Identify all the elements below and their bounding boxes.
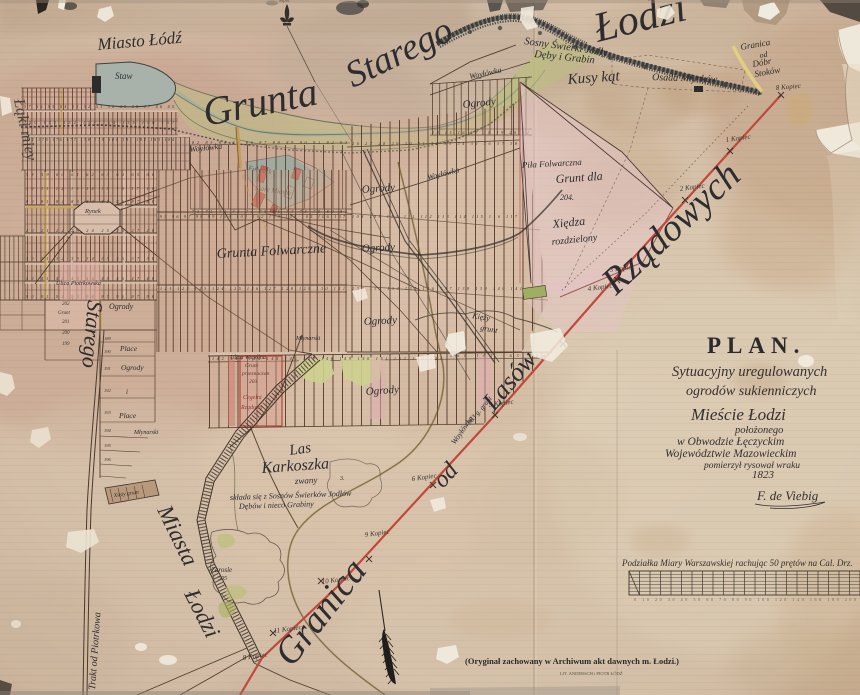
- svg-text:3.: 3.: [339, 476, 345, 482]
- svg-text:zwany: zwany: [294, 475, 318, 486]
- svg-text:199: 199: [62, 342, 70, 347]
- svg-text:195: 195: [104, 443, 112, 448]
- svg-text:193: 193: [104, 410, 112, 415]
- svg-text:Ogrody: Ogrody: [365, 384, 399, 398]
- svg-text:Województwie Mazowieckim: Województwie Mazowieckim: [665, 448, 797, 460]
- svg-text:95 96 97 98 99 100 101 102 103: 95 96 97 98 99 100 101 102 103 104 105 1…: [160, 214, 346, 219]
- svg-text:Ogrody: Ogrody: [361, 182, 395, 196]
- svg-text:w Obwodzie Łęczyckim: w Obwodzie Łęczyckim: [677, 436, 784, 448]
- svg-text:Ulica Wspólna: Ulica Wspólna: [230, 355, 266, 361]
- svg-text:Grunt: Grunt: [58, 311, 71, 316]
- svg-text:191: 191: [104, 366, 111, 371]
- svg-text:Place: Place: [119, 344, 138, 353]
- svg-text:ogrodów sukienniczych: ogrodów sukienniczych: [686, 384, 817, 399]
- svg-text:Cegelni: Cegelni: [243, 395, 262, 401]
- svg-text:14 15 16 17 18 19 20 21: 14 15 16 17 18 19 20 21: [432, 130, 529, 135]
- svg-text:204.: 204.: [560, 193, 574, 202]
- svg-text:Grunt: Grunt: [245, 363, 259, 369]
- svg-text:Ogrody: Ogrody: [364, 314, 398, 328]
- svg-text:Ogrody: Ogrody: [362, 241, 396, 255]
- svg-text:174 175 176 177 178 179 180 18: 174 175 176 177 178 179 180 181 182 183 …: [24, 137, 174, 142]
- svg-text:201: 201: [62, 320, 70, 325]
- svg-text:Ogrody: Ogrody: [121, 363, 144, 372]
- svg-text:Osada Młynków: Osada Młynków: [652, 72, 718, 85]
- svg-text:Ogrody: Ogrody: [109, 302, 134, 311]
- svg-text:200: 200: [62, 331, 70, 336]
- svg-text:Młynarski: Młynarski: [133, 430, 159, 436]
- svg-text:1823: 1823: [752, 469, 775, 481]
- svg-text:190: 190: [104, 349, 112, 354]
- svg-text:przeznaczon: przeznaczon: [241, 371, 269, 377]
- svg-text:196: 196: [104, 457, 112, 462]
- svg-text:PLAN.: PLAN.: [707, 333, 805, 358]
- svg-text:(Oryginał zachowany w Archiwum: (Oryginał zachowany w Archiwum akt dawny…: [465, 656, 679, 666]
- svg-text:505: 505: [218, 576, 227, 582]
- svg-text:Staw: Staw: [115, 71, 133, 81]
- svg-text:położonego: położonego: [734, 425, 783, 436]
- svg-text:121 122 123 124 125 126 127 12: 121 122 123 124 125 126 127 128 129 130 …: [160, 286, 345, 291]
- svg-text:Mieście Łodzi: Mieście Łodzi: [690, 405, 786, 424]
- svg-text:192: 192: [104, 388, 112, 393]
- svg-text:i: i: [126, 388, 128, 396]
- svg-text:Podziałka Miary Warszawskiej r: Podziałka Miary Warszawskiej rachując 50…: [621, 558, 853, 568]
- svg-text:70 71 72 73 74 75 76 77 78 79: 70 71 72 73 74 75 76 77 78 79 80 81: [192, 209, 347, 214]
- svg-text:Rynek: Rynek: [84, 208, 101, 215]
- svg-text:203: 203: [249, 379, 258, 385]
- svg-text:202: 202: [62, 302, 70, 307]
- svg-text:Place: Place: [118, 411, 137, 420]
- svg-text:Zarosle: Zarosle: [211, 566, 232, 574]
- svg-text:LIT. ANDERSCH i PIOTR ŁÓDŹ: LIT. ANDERSCH i PIOTR ŁÓDŹ: [560, 671, 623, 676]
- svg-text:Ulica Piotrkowska: Ulica Piotrkowska: [56, 281, 101, 287]
- svg-text:Młynarski: Młynarski: [295, 336, 321, 342]
- svg-text:194: 194: [104, 428, 112, 433]
- svg-text:F. de Viebig: F. de Viebig: [756, 488, 819, 503]
